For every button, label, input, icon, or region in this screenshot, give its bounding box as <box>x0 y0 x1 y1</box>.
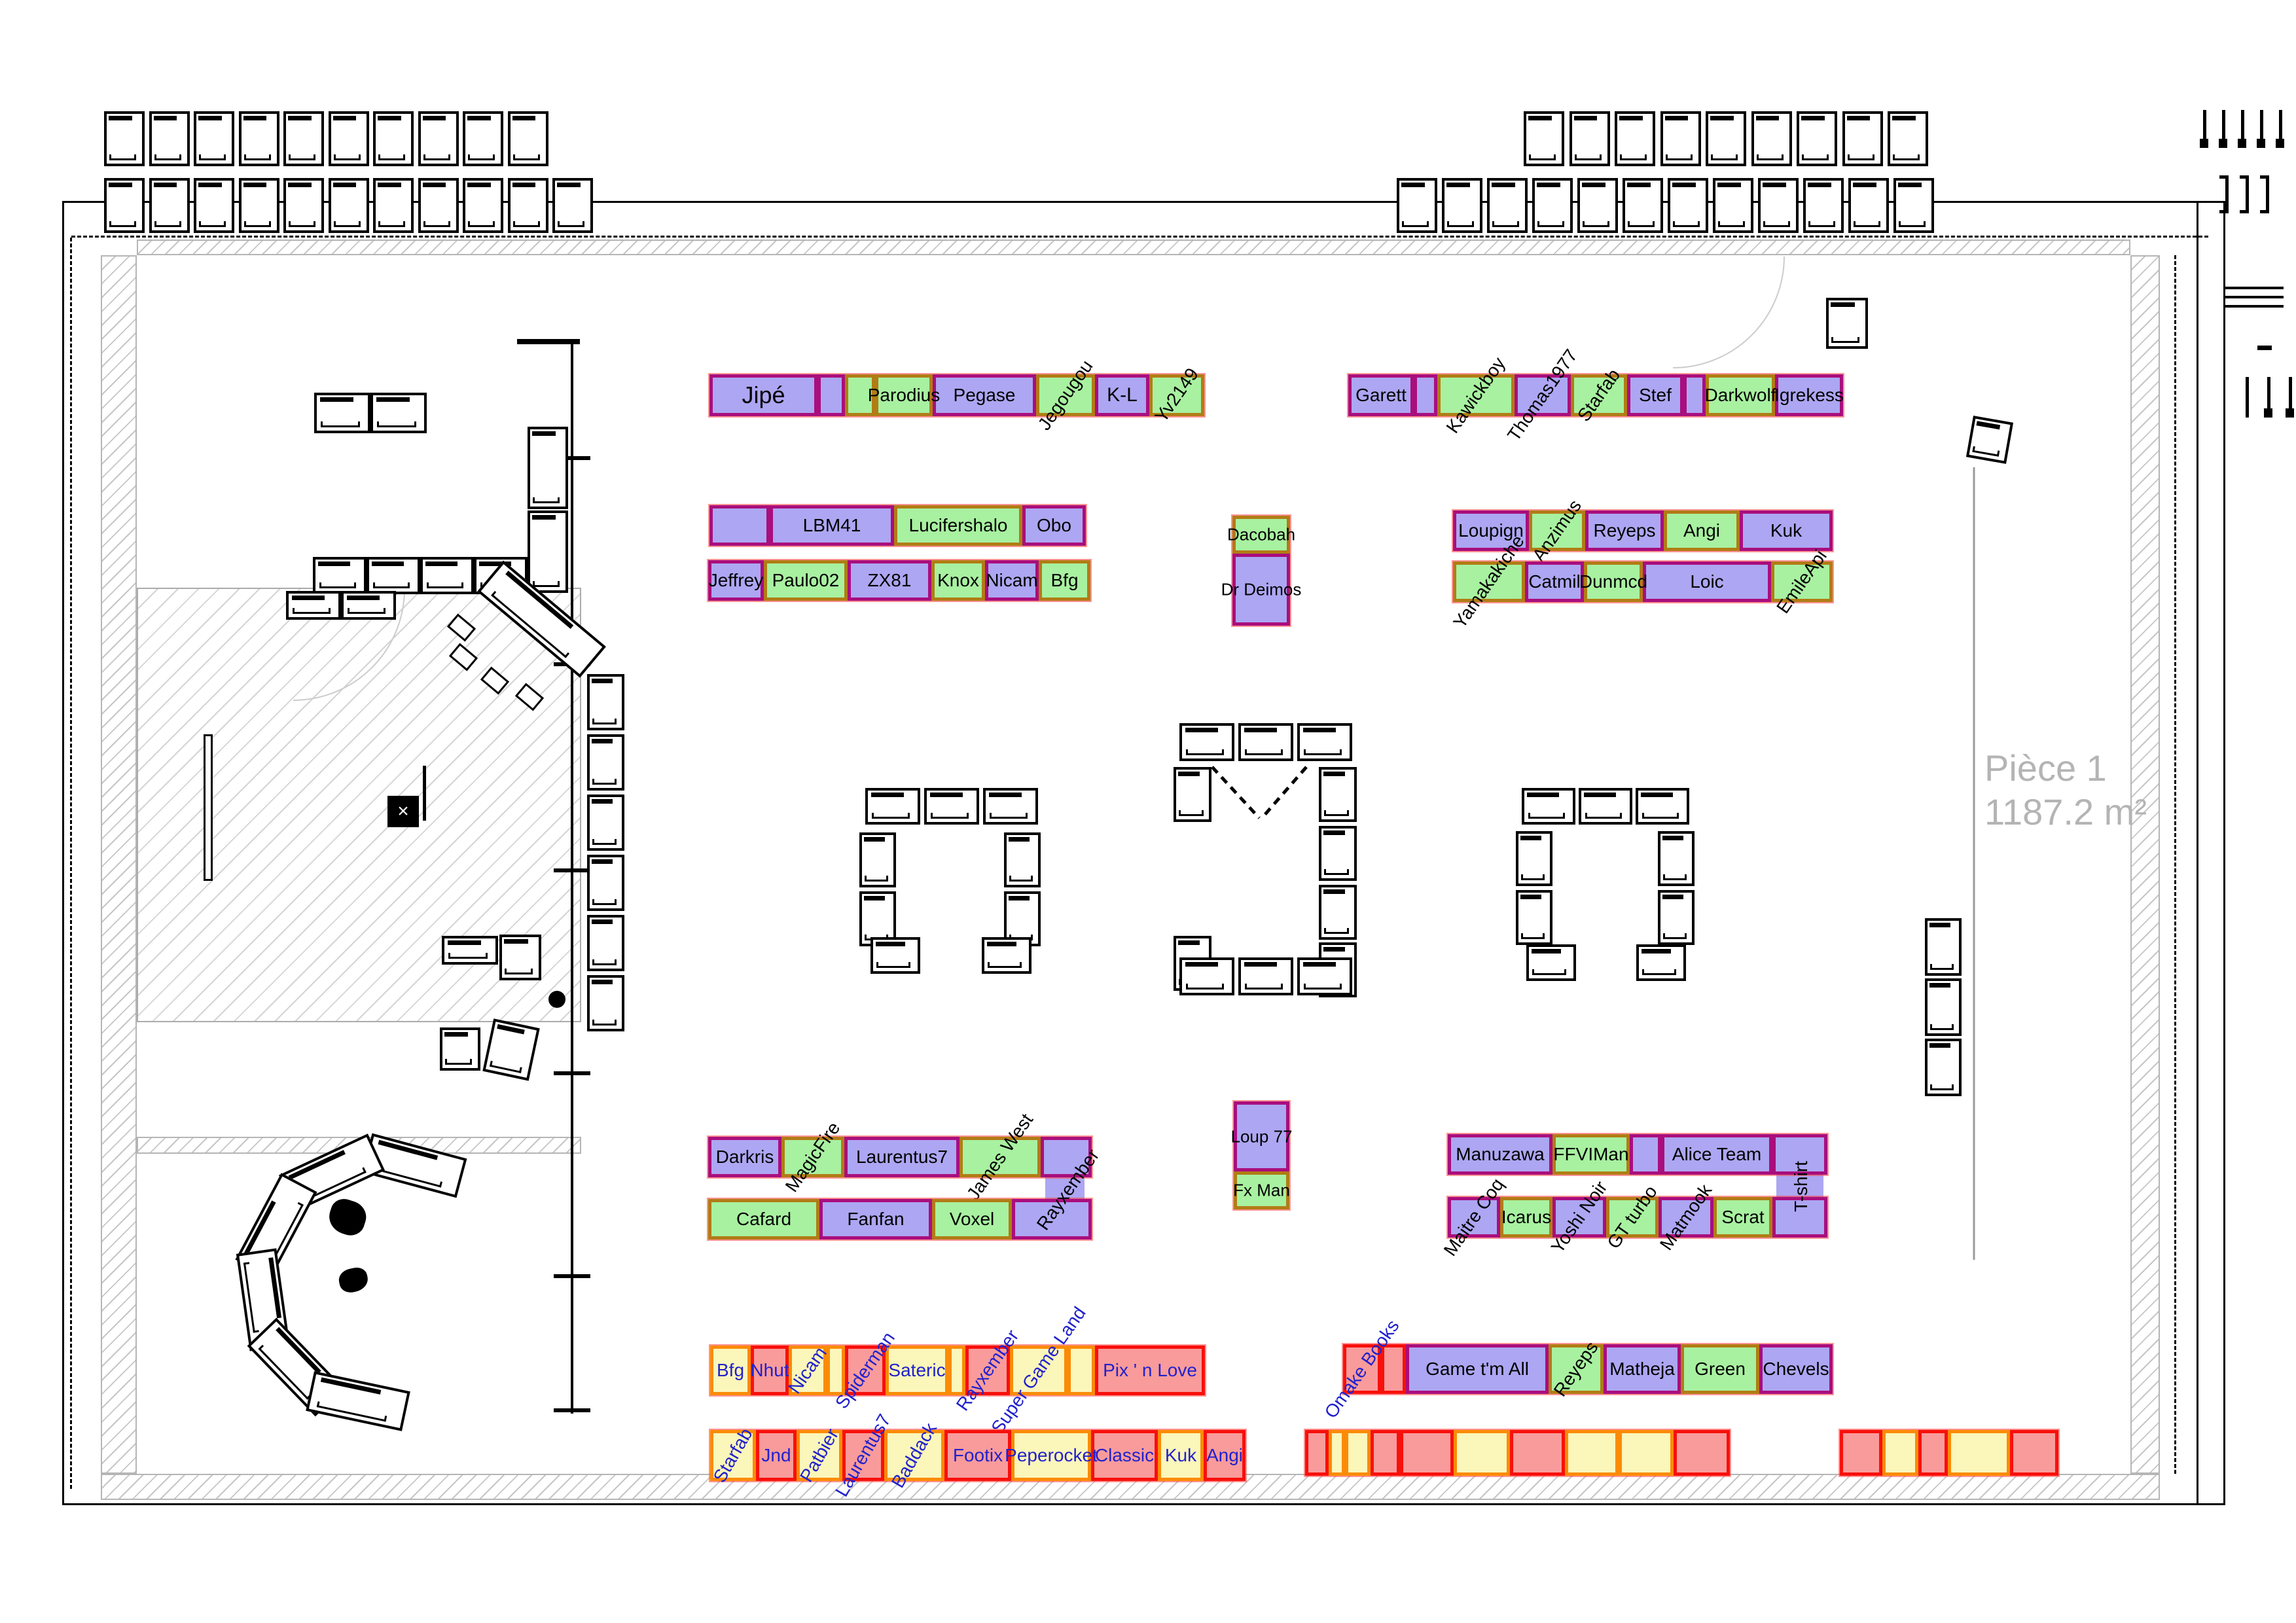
table[interactable] <box>367 557 420 594</box>
legend-dash-icon <box>2257 346 2272 350</box>
booth-yoshi-noir[interactable]: Yoshi Noir <box>1552 1197 1606 1238</box>
table[interactable] <box>418 111 459 166</box>
booth-reyeps[interactable]: Reyeps <box>1549 1344 1604 1394</box>
booth-label: Kuk <box>1770 520 1802 541</box>
booth-empty[interactable] <box>1840 1430 1882 1476</box>
table[interactable] <box>1758 178 1799 233</box>
booth-label: Pegase <box>954 385 1016 406</box>
booth-icarus[interactable]: Icarus <box>1500 1197 1552 1238</box>
booth-label: Obo <box>1037 515 1071 536</box>
table[interactable] <box>587 794 624 851</box>
table[interactable] <box>552 178 593 233</box>
table[interactable] <box>1668 178 1708 233</box>
booth-kuk[interactable]: Kuk <box>1740 510 1833 551</box>
booth-jip[interactable]: Jipé <box>709 374 817 416</box>
table[interactable] <box>982 937 1031 974</box>
legend-line-icon <box>2225 296 2284 298</box>
booth-sateric[interactable]: Sateric <box>886 1346 948 1395</box>
row-mid-left-1: LBM41LucifershaloObo <box>709 505 1086 546</box>
booth-empty[interactable] <box>948 1346 965 1395</box>
booth-empty[interactable] <box>1305 1430 1329 1476</box>
booth-scrat[interactable]: Scrat <box>1713 1197 1772 1238</box>
table[interactable] <box>418 178 459 233</box>
floor-dot-mark <box>548 991 565 1008</box>
booth-magicfire[interactable]: MagicFire <box>781 1137 844 1177</box>
booth-empty[interactable] <box>1565 1430 1619 1476</box>
booth-patbier[interactable]: Patbier <box>797 1430 842 1481</box>
booth-empty[interactable] <box>1329 1430 1345 1476</box>
booth-gt-turbo[interactable]: GT turbo <box>1606 1197 1659 1238</box>
table[interactable] <box>1179 957 1234 995</box>
table[interactable] <box>1893 178 1934 233</box>
table[interactable] <box>1526 944 1576 981</box>
booth-label: Stef <box>1639 385 1672 406</box>
booth-igrekess[interactable]: Igrekess <box>1775 374 1843 416</box>
booth-label: Reyeps <box>1550 1338 1603 1400</box>
booth-label: Angi <box>1683 520 1720 541</box>
bar-right <box>1840 1430 2058 1476</box>
booth-label: ZX81 <box>868 570 912 591</box>
table[interactable] <box>1803 178 1844 233</box>
booth-empty[interactable] <box>709 505 770 546</box>
booth-nicam[interactable]: Nicam <box>985 560 1039 601</box>
table[interactable] <box>1706 111 1746 166</box>
legend-line-icon <box>2225 305 2284 308</box>
row-top-left: JipéParodiusPegaseJegougouK-LYv2149 <box>709 374 1204 416</box>
booth-green[interactable]: Green <box>1681 1344 1759 1394</box>
legend-bracket-icon <box>2246 175 2249 213</box>
booth-loup-77[interactable]: Loup 77 <box>1234 1101 1289 1171</box>
booth-label: Jeffrey <box>709 570 764 591</box>
table[interactable] <box>104 178 145 233</box>
floor-plan: Pièce 1 1187.2 m² × JipéParodiusPegaseJe… <box>0 0 2296 1623</box>
booth-label: Nicam <box>784 1343 831 1397</box>
table[interactable] <box>149 178 190 233</box>
table[interactable] <box>442 936 498 965</box>
table[interactable] <box>1842 111 1883 166</box>
booth-chevels[interactable]: Chevels <box>1759 1344 1833 1394</box>
table[interactable] <box>1397 178 1437 233</box>
table[interactable] <box>239 178 279 233</box>
table[interactable] <box>1524 111 1564 166</box>
booth-label: Reyeps <box>1594 520 1656 541</box>
table[interactable] <box>1516 831 1552 886</box>
booth-knox[interactable]: Knox <box>931 560 985 601</box>
legend-pin-icon <box>2267 377 2270 418</box>
table[interactable] <box>1826 298 1868 349</box>
booth-empty[interactable] <box>817 374 845 416</box>
room-label: Pièce 1 1187.2 m² <box>1984 746 2147 834</box>
legend-pin-icon <box>2279 110 2282 148</box>
table[interactable] <box>508 111 548 166</box>
booth-label: Pix ' n Love <box>1103 1360 1197 1381</box>
booth-label: Starfab <box>709 1425 757 1486</box>
table[interactable] <box>1797 111 1837 166</box>
booth-stef[interactable]: Stef <box>1627 374 1683 416</box>
booth-jeffrey[interactable]: Jeffrey <box>708 560 764 601</box>
row-mid-left-2: JeffreyPaulo02ZX81KnoxNicamBfg <box>708 560 1090 601</box>
row-red-left: BfgNhutNicamSpidermanSatericRayxemberSup… <box>710 1346 1205 1395</box>
booth-label: Fx Man <box>1233 1181 1290 1201</box>
booth-angi[interactable]: Angi <box>1204 1430 1246 1481</box>
room-area: 1187.2 m² <box>1984 790 2147 834</box>
booth-fx-man[interactable]: Fx Man <box>1234 1171 1289 1209</box>
table[interactable] <box>194 111 234 166</box>
table[interactable] <box>1319 885 1357 940</box>
booth-spiderman[interactable]: Spiderman <box>845 1346 886 1395</box>
booth-voxel[interactable]: Voxel <box>932 1199 1012 1240</box>
legend-pin-icon <box>2222 110 2225 148</box>
stack-loup77: Loup 77Fx Man <box>1234 1101 1289 1209</box>
booth-label: Kuk <box>1165 1445 1196 1466</box>
booth-empty[interactable] <box>1619 1430 1674 1476</box>
booth-label: Nhut <box>750 1360 789 1381</box>
equipment-marker-icon: × <box>387 796 419 827</box>
booth-lucifershalo[interactable]: Lucifershalo <box>894 505 1022 546</box>
booth-empty[interactable] <box>2010 1430 2058 1476</box>
booth-james-west[interactable]: James West <box>960 1137 1041 1177</box>
table[interactable] <box>1522 788 1575 825</box>
booth-yv2149[interactable]: Yv2149 <box>1149 374 1204 416</box>
table[interactable] <box>1848 178 1889 233</box>
booth-label: LBM41 <box>803 515 861 536</box>
table[interactable] <box>587 674 624 730</box>
booth-laurentus7[interactable]: Laurentus7 <box>842 1430 884 1481</box>
booth-yamakakiche[interactable]: Yamakakiche <box>1453 562 1525 602</box>
legend-line-icon <box>2225 287 2284 289</box>
booth-angi[interactable]: Angi <box>1664 510 1740 551</box>
booth-label: Jnd <box>761 1445 791 1466</box>
table[interactable] <box>440 1027 480 1071</box>
table[interactable] <box>313 557 367 594</box>
booth-alice-team[interactable]: Alice Team <box>1661 1134 1772 1175</box>
table[interactable] <box>1179 723 1234 761</box>
booth-empty[interactable] <box>845 374 875 416</box>
booth-anzimus[interactable]: Anzimus <box>1529 510 1585 551</box>
table[interactable] <box>587 915 624 971</box>
screen-panel[interactable] <box>204 734 213 881</box>
booth-label: Igrekess <box>1774 385 1844 406</box>
table[interactable] <box>587 734 624 791</box>
booth-label: Angi <box>1206 1445 1243 1466</box>
table[interactable] <box>149 111 190 166</box>
table[interactable] <box>508 178 548 233</box>
table[interactable] <box>341 591 396 620</box>
booth-empty[interactable] <box>1414 374 1437 416</box>
booth-label: Chevels <box>1763 1359 1829 1380</box>
booth-kawickboy[interactable]: Kawickboy <box>1437 374 1515 416</box>
booth-dacobah[interactable]: Dacobah <box>1232 516 1290 554</box>
booth-matmook[interactable]: Matmook <box>1659 1197 1713 1238</box>
stack-dacobah: DacobahDr Deimos <box>1232 516 1290 626</box>
booth-laurentus7[interactable]: Laurentus7 <box>844 1137 960 1177</box>
booth-starfab[interactable]: Starfab <box>1571 374 1627 416</box>
booth-empty[interactable] <box>1454 1430 1510 1476</box>
table[interactable] <box>463 178 503 233</box>
table[interactable] <box>1487 178 1528 233</box>
booth-label: Catmil <box>1528 571 1580 592</box>
booth-label: Matheja <box>1609 1359 1675 1380</box>
booth-bfg[interactable]: Bfg <box>710 1346 751 1395</box>
booth-classic[interactable]: Classic <box>1091 1430 1158 1481</box>
booth-label: Jipé <box>742 382 785 409</box>
table[interactable] <box>1297 957 1352 995</box>
room-name: Pièce 1 <box>1984 746 2147 790</box>
booth-label: Paulo02 <box>772 570 840 591</box>
booth-empty[interactable] <box>1510 1430 1565 1476</box>
table[interactable] <box>1925 918 1962 976</box>
booth-label: Loup 77 <box>1231 1126 1293 1147</box>
table[interactable] <box>1297 723 1352 761</box>
table[interactable] <box>528 427 568 509</box>
booth-label: Garett <box>1355 385 1407 406</box>
table[interactable] <box>283 111 324 166</box>
booth-label: Darkwolf <box>1705 385 1776 406</box>
row-bottom-right-1: ManuzawaFFVIManAlice Team <box>1448 1134 1827 1175</box>
table[interactable] <box>1577 178 1618 233</box>
booth-label: Parodius <box>868 385 941 406</box>
booth-empty[interactable] <box>827 1346 845 1395</box>
booth-label: Manuzawa <box>1456 1144 1544 1165</box>
table[interactable] <box>1636 788 1689 825</box>
table[interactable] <box>924 788 979 825</box>
booth-footix[interactable]: Footix <box>944 1430 1011 1481</box>
table[interactable] <box>1319 826 1357 881</box>
booth-label: Footix <box>953 1445 1003 1466</box>
table[interactable] <box>1660 111 1701 166</box>
booth-ffviman[interactable]: FFVIMan <box>1552 1134 1630 1175</box>
booth-label: Loupign <box>1458 520 1524 541</box>
row-bottom-right-2: Maitre CoqIcarusYoshi NoirGT turboMatmoo… <box>1448 1197 1827 1238</box>
booth-k-l[interactable]: K-L <box>1095 374 1149 416</box>
row-bottom-left-1: DarkrisMagicFireLaurentus7James West <box>708 1137 1092 1177</box>
booth-darkris[interactable]: Darkris <box>708 1137 781 1177</box>
booth-label: Dunmcd <box>1579 571 1647 592</box>
table[interactable] <box>499 935 541 980</box>
booth-label: Green <box>1695 1359 1746 1380</box>
table[interactable] <box>1713 178 1753 233</box>
row-mid-right-2: YamakakicheCatmilDunmcdLoicEmileApi <box>1453 562 1833 602</box>
row-bottom-strip: StarfabJndPatbierLaurentus7BaddackFootix… <box>710 1430 1246 1481</box>
table[interactable] <box>1966 416 2013 464</box>
legend-pin-icon <box>2246 377 2249 418</box>
bar-mid <box>1305 1430 1730 1476</box>
table[interactable] <box>239 111 279 166</box>
booth-maitre-coq[interactable]: Maitre Coq <box>1448 1197 1500 1238</box>
booth-label: Loic <box>1690 571 1723 592</box>
table[interactable] <box>528 510 568 593</box>
booth-pegase[interactable]: Pegase <box>933 374 1036 416</box>
booth-dunmcd[interactable]: Dunmcd <box>1584 562 1643 602</box>
booth-empty[interactable] <box>1918 1430 1948 1476</box>
legend-pin-icon <box>2260 110 2263 148</box>
booth-empty[interactable] <box>1674 1430 1730 1476</box>
booth-fanfan[interactable]: Fanfan <box>819 1199 932 1240</box>
booth-omake-books[interactable]: Omake Books <box>1343 1344 1381 1394</box>
booth-baddack[interactable]: Baddack <box>884 1430 944 1481</box>
booth-label: Fanfan <box>847 1209 904 1230</box>
booth-garett[interactable]: Garett <box>1348 374 1414 416</box>
table[interactable] <box>870 937 920 974</box>
booth-label: Lucifershalo <box>909 515 1008 536</box>
booth-label: Sateric <box>888 1360 945 1381</box>
legend-bracket-icon <box>2225 175 2229 213</box>
table[interactable] <box>1579 788 1632 825</box>
table[interactable] <box>373 111 414 166</box>
table[interactable] <box>1004 832 1041 887</box>
table[interactable] <box>1532 178 1573 233</box>
booth-manuzawa[interactable]: Manuzawa <box>1448 1134 1552 1175</box>
table[interactable] <box>370 393 427 433</box>
booth-label: Alice Team <box>1672 1144 1761 1165</box>
booth-label: Patbier <box>796 1425 843 1486</box>
wall-hatch-top <box>137 240 2130 255</box>
overlay-label-t-shirt: T-shirt <box>1791 1161 1812 1212</box>
wall-axis-dashed-top <box>71 236 2208 238</box>
table[interactable] <box>329 178 369 233</box>
table[interactable] <box>1658 890 1695 945</box>
row-top-right: GarettKawickboyThomas1977StarfabStefDark… <box>1348 374 1843 416</box>
booth-label: Knox <box>937 570 979 591</box>
booth-label: Darkris <box>716 1147 774 1168</box>
booth-pix-n-love[interactable]: Pix ' n Love <box>1095 1346 1205 1395</box>
table[interactable] <box>1238 723 1293 761</box>
table[interactable] <box>859 832 896 887</box>
row-mid-right-1: LoupignAnzimusReyepsAngiKuk <box>1453 510 1833 551</box>
table[interactable] <box>420 557 474 594</box>
legend-pin-icon <box>2241 110 2244 148</box>
booth-catmil[interactable]: Catmil <box>1525 562 1584 602</box>
booth-label: Baddack <box>888 1419 941 1491</box>
legend-bracket-icon <box>2266 175 2269 213</box>
wall-hatch-right <box>2130 255 2160 1474</box>
booth-darkwolf[interactable]: Darkwolf <box>1706 374 1775 416</box>
booth-empty[interactable] <box>1948 1430 2010 1476</box>
booth-loupign[interactable]: Loupign <box>1453 510 1529 551</box>
legend-pin-icon <box>2203 110 2206 148</box>
table[interactable] <box>463 111 503 166</box>
table[interactable] <box>329 111 369 166</box>
booth-label: FFVIMan <box>1553 1144 1628 1165</box>
booth-label: Icarus <box>1501 1207 1551 1228</box>
booth-paulo02[interactable]: Paulo02 <box>764 560 848 601</box>
booth-thomas1977[interactable]: Thomas1977 <box>1515 374 1571 416</box>
table[interactable] <box>373 178 414 233</box>
table[interactable] <box>983 788 1038 825</box>
table[interactable] <box>194 178 234 233</box>
booth-label: Classic <box>1095 1445 1154 1466</box>
booth-jnd[interactable]: Jnd <box>756 1430 797 1481</box>
table[interactable] <box>1925 978 1962 1036</box>
table[interactable] <box>1570 111 1610 166</box>
table[interactable] <box>286 591 341 620</box>
table[interactable] <box>1442 178 1482 233</box>
booth-empty[interactable] <box>1630 1134 1661 1175</box>
booth-dr-deimos[interactable]: Dr Deimos <box>1232 554 1290 626</box>
booth-lbm41[interactable]: LBM41 <box>770 505 894 546</box>
table[interactable] <box>865 788 920 825</box>
booth-starfab[interactable]: Starfab <box>710 1430 756 1481</box>
booth-jegougou[interactable]: Jegougou <box>1036 374 1095 416</box>
booth-loic[interactable]: Loic <box>1643 562 1771 602</box>
table[interactable] <box>104 111 145 166</box>
booth-kuk[interactable]: Kuk <box>1158 1430 1204 1481</box>
booth-label: Dacobah <box>1227 525 1295 545</box>
booth-nhut[interactable]: Nhut <box>751 1346 789 1395</box>
wall-axis-dashed-left <box>70 238 72 1489</box>
table[interactable] <box>587 855 624 911</box>
table[interactable] <box>1636 944 1686 981</box>
booth-empty[interactable] <box>1882 1430 1918 1476</box>
booth-parodius[interactable]: Parodius <box>875 374 933 416</box>
table[interactable] <box>1658 831 1695 886</box>
table[interactable] <box>1623 178 1663 233</box>
booth-label: Nicam <box>986 570 1037 591</box>
booth-label: Voxel <box>950 1209 995 1230</box>
booth-empty[interactable] <box>1067 1346 1095 1395</box>
booth-label: Peperocket <box>1005 1445 1098 1466</box>
booth-label: Bfg <box>717 1360 744 1381</box>
booth-label: Game t'm All <box>1426 1359 1529 1380</box>
booth-rayxember[interactable]: Rayxember <box>965 1346 1010 1395</box>
booth-nicam[interactable]: Nicam <box>789 1346 827 1395</box>
booth-peperocket[interactable]: Peperocket <box>1011 1430 1091 1481</box>
table[interactable] <box>314 393 370 433</box>
booth-label: Cafard <box>736 1209 791 1230</box>
booth-bfg[interactable]: Bfg <box>1039 560 1090 601</box>
booth-empty[interactable] <box>1381 1344 1406 1394</box>
booth-empty[interactable] <box>1371 1430 1400 1476</box>
table[interactable] <box>1238 957 1293 995</box>
table[interactable] <box>1615 111 1655 166</box>
wall-axis-dashed-right <box>2174 255 2176 1474</box>
table[interactable] <box>1319 767 1357 822</box>
table[interactable] <box>283 178 324 233</box>
table[interactable] <box>1888 111 1928 166</box>
booth-empty[interactable] <box>1683 374 1706 416</box>
booth-obo[interactable]: Obo <box>1022 505 1086 546</box>
booth-label: K-L <box>1107 384 1138 406</box>
legend-pin-icon <box>2289 377 2292 418</box>
booth-label: Bfg <box>1050 570 1078 591</box>
wall-hatch-left <box>101 255 137 1474</box>
booth-label: Laurentus7 <box>856 1147 948 1168</box>
booth-super-game-land[interactable]: Super Game Land <box>1010 1346 1067 1395</box>
booth-emileapi[interactable]: EmileApi <box>1771 562 1833 602</box>
table[interactable] <box>1174 767 1211 822</box>
booth-label: Dr Deimos <box>1221 580 1302 600</box>
table[interactable] <box>1751 111 1792 166</box>
booth-cafard[interactable]: Cafard <box>708 1199 819 1240</box>
booth-zx81[interactable]: ZX81 <box>848 560 931 601</box>
booth-empty[interactable] <box>1345 1430 1371 1476</box>
booth-game-t-m-all[interactable]: Game t'm All <box>1406 1344 1549 1394</box>
booth-label: Scrat <box>1721 1207 1764 1228</box>
table[interactable] <box>587 975 624 1031</box>
wall-face-right <box>2197 201 2198 1505</box>
booth-empty[interactable] <box>1400 1430 1454 1476</box>
table[interactable] <box>1516 890 1552 945</box>
booth-reyeps[interactable]: Reyeps <box>1585 510 1664 551</box>
column-mark <box>423 766 426 821</box>
booth-matheja[interactable]: Matheja <box>1604 1344 1681 1394</box>
table[interactable] <box>1925 1039 1962 1096</box>
row-red-right: Omake BooksGame t'm AllReyepsMathejaGree… <box>1343 1344 1833 1394</box>
